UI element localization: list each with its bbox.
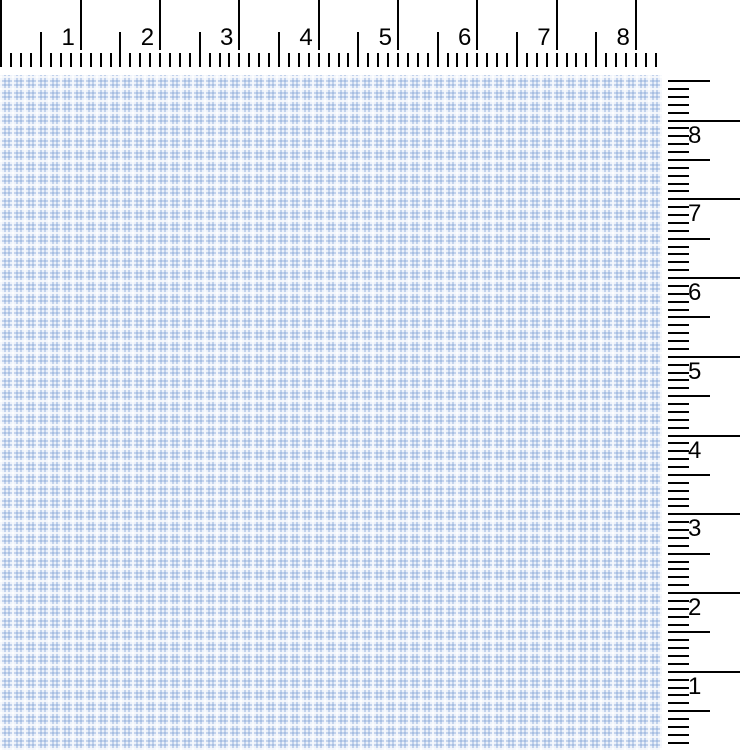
tick-minor	[318, 53, 320, 67]
tick-minor	[70, 53, 72, 67]
tick-minor	[668, 482, 689, 484]
ruler-origin-line	[0, 0, 2, 67]
tick-minor	[668, 411, 689, 413]
tick-minor	[668, 521, 689, 523]
tick-minor	[447, 53, 449, 67]
ruler-label-top-5: 5	[342, 26, 392, 50]
tick-minor	[668, 624, 689, 626]
tick-minor	[668, 246, 689, 248]
tick-minor	[668, 742, 689, 744]
ruler-label-top-6: 6	[421, 26, 471, 50]
tick-minor	[668, 537, 689, 539]
tick-minor	[668, 143, 689, 145]
tick-inch	[668, 671, 740, 673]
ruler-label-right-2: 2	[688, 596, 701, 620]
tick-minor	[635, 53, 637, 67]
tick-minor	[199, 53, 201, 67]
tick-minor	[615, 53, 617, 67]
tick-minor	[668, 568, 689, 570]
tick-minor	[90, 53, 92, 67]
tick-minor	[575, 53, 577, 67]
tick-minor	[149, 53, 151, 67]
tick-minor	[668, 734, 689, 736]
tick-minor	[566, 53, 568, 67]
tick-minor	[536, 53, 538, 67]
tick-minor	[668, 466, 689, 468]
tick-minor	[668, 269, 689, 271]
tick-minor	[668, 608, 689, 610]
tick-minor	[668, 561, 689, 563]
tick-minor	[668, 379, 689, 381]
plaid-canvas[interactable]	[0, 75, 662, 750]
tick-inch	[635, 0, 637, 50]
tick-half-inch	[668, 316, 710, 318]
tick-minor	[417, 53, 419, 67]
tick-minor	[347, 53, 349, 67]
tick-inch	[668, 592, 740, 594]
tick-minor	[10, 53, 12, 67]
tick-minor	[668, 127, 689, 129]
tick-minor	[668, 151, 689, 153]
tick-minor	[668, 190, 689, 192]
tick-minor	[668, 293, 689, 295]
tick-minor	[668, 135, 689, 137]
tick-minor	[668, 167, 689, 169]
tick-inch	[318, 0, 320, 50]
tick-half-inch	[668, 238, 710, 240]
tick-minor	[668, 340, 689, 342]
tick-minor	[60, 53, 62, 67]
tick-minor	[387, 53, 389, 67]
tick-minor	[668, 253, 689, 255]
tick-minor	[357, 53, 359, 67]
tick-minor	[668, 663, 689, 665]
tick-minor	[668, 600, 689, 602]
tick-minor	[668, 332, 689, 334]
tick-minor	[486, 53, 488, 67]
tick-minor	[668, 403, 689, 405]
ruler-label-top-7: 7	[501, 26, 551, 50]
tick-minor	[668, 616, 689, 618]
tick-minor	[189, 53, 191, 67]
tick-minor	[668, 301, 689, 303]
tick-minor	[668, 694, 689, 696]
tick-minor	[308, 53, 310, 67]
tick-half-inch	[668, 631, 710, 633]
ruler-label-top-4: 4	[263, 26, 313, 50]
tick-inch	[397, 0, 399, 50]
tick-minor	[110, 53, 112, 67]
tick-minor	[668, 348, 689, 350]
tick-minor	[668, 726, 689, 728]
ruler-label-top-8: 8	[580, 26, 630, 50]
tick-minor	[668, 387, 689, 389]
ruler-label-top-3: 3	[183, 26, 233, 50]
tick-minor	[668, 718, 689, 720]
tick-minor	[668, 647, 689, 649]
tick-minor	[169, 53, 171, 67]
tick-minor	[668, 529, 689, 531]
tick-inch	[668, 277, 740, 279]
tick-minor	[50, 53, 52, 67]
tick-minor	[238, 53, 240, 67]
tick-minor	[407, 53, 409, 67]
tick-minor	[668, 498, 689, 500]
tick-minor	[298, 53, 300, 67]
tick-minor	[209, 53, 211, 67]
tick-minor	[668, 458, 689, 460]
tick-minor	[585, 53, 587, 67]
tick-minor	[328, 53, 330, 67]
tick-minor	[605, 53, 607, 67]
tick-minor	[288, 53, 290, 67]
tick-minor	[668, 309, 689, 311]
tick-minor	[668, 576, 689, 578]
tick-minor	[258, 53, 260, 67]
tick-minor	[20, 53, 22, 67]
tick-minor	[139, 53, 141, 67]
tick-minor	[80, 53, 82, 67]
tick-minor	[668, 364, 689, 366]
tick-minor	[248, 53, 250, 67]
tick-minor	[397, 53, 399, 67]
ruler-label-right-1: 1	[688, 675, 701, 699]
app-window: 12345678 12345678	[0, 0, 740, 750]
tick-half-inch	[668, 395, 710, 397]
tick-inch	[159, 0, 161, 50]
tick-minor	[668, 206, 689, 208]
tick-inch	[668, 198, 740, 200]
tick-minor	[40, 53, 42, 67]
tick-minor	[668, 230, 689, 232]
tick-minor	[595, 53, 597, 67]
tick-minor	[278, 53, 280, 67]
tick-minor	[668, 679, 689, 681]
tick-minor	[668, 655, 689, 657]
ruler-label-top-2: 2	[104, 26, 154, 50]
tick-half-inch	[668, 710, 710, 712]
tick-minor	[668, 372, 689, 374]
tick-minor	[377, 53, 379, 67]
tick-minor	[668, 222, 689, 224]
tick-minor	[546, 53, 548, 67]
tick-minor	[129, 53, 131, 67]
tick-minor	[668, 112, 689, 114]
tick-minor	[668, 505, 689, 507]
tick-minor	[668, 261, 689, 263]
tick-minor	[456, 53, 458, 67]
ruler-label-top-1: 1	[25, 26, 75, 50]
tick-minor	[179, 53, 181, 67]
tick-inch	[476, 0, 478, 50]
tick-minor	[228, 53, 230, 67]
tick-inch	[556, 0, 558, 50]
tick-inch	[668, 356, 740, 358]
tick-minor	[668, 687, 689, 689]
tick-minor	[655, 53, 657, 67]
tick-minor	[668, 584, 689, 586]
tick-inch	[238, 0, 240, 50]
tick-minor	[526, 53, 528, 67]
tick-minor	[338, 53, 340, 67]
tick-minor	[219, 53, 221, 67]
ruler-vertical[interactable]: 12345678	[666, 72, 740, 750]
tick-inch	[80, 0, 82, 50]
tick-inch	[668, 435, 740, 437]
tick-half-inch	[668, 159, 710, 161]
tick-minor	[100, 53, 102, 67]
tick-minor	[668, 427, 689, 429]
tick-minor	[668, 324, 689, 326]
tick-half-inch	[668, 553, 710, 555]
ruler-label-right-4: 4	[688, 439, 701, 463]
tick-minor	[556, 53, 558, 67]
ruler-label-right-3: 3	[688, 517, 701, 541]
tick-minor	[668, 175, 689, 177]
tick-minor	[476, 53, 478, 67]
tick-minor	[268, 53, 270, 67]
tick-minor	[516, 53, 518, 67]
ruler-horizontal[interactable]: 12345678	[0, 0, 662, 68]
tick-minor	[506, 53, 508, 67]
tick-half-inch	[668, 80, 710, 82]
tick-minor	[625, 53, 627, 67]
tick-minor	[668, 490, 689, 492]
ruler-label-right-7: 7	[688, 202, 701, 226]
tick-minor	[668, 183, 689, 185]
tick-minor	[668, 96, 689, 98]
tick-minor	[668, 214, 689, 216]
tick-half-inch	[668, 474, 710, 476]
tick-minor	[668, 702, 689, 704]
tick-minor	[645, 53, 647, 67]
ruler-label-right-6: 6	[688, 281, 701, 305]
ruler-label-right-5: 5	[688, 360, 701, 384]
tick-inch	[668, 513, 740, 515]
tick-minor	[668, 285, 689, 287]
tick-minor	[668, 639, 689, 641]
tick-minor	[30, 53, 32, 67]
tick-minor	[119, 53, 121, 67]
tick-minor	[668, 450, 689, 452]
tick-minor	[668, 442, 689, 444]
tick-minor	[668, 419, 689, 421]
tick-minor	[668, 104, 689, 106]
ruler-label-right-8: 8	[688, 124, 701, 148]
tick-minor	[466, 53, 468, 67]
tick-minor	[427, 53, 429, 67]
tick-inch	[668, 120, 740, 122]
tick-minor	[437, 53, 439, 67]
tick-minor	[668, 88, 689, 90]
tick-minor	[367, 53, 369, 67]
tick-minor	[159, 53, 161, 67]
tick-minor	[668, 545, 689, 547]
tick-minor	[496, 53, 498, 67]
